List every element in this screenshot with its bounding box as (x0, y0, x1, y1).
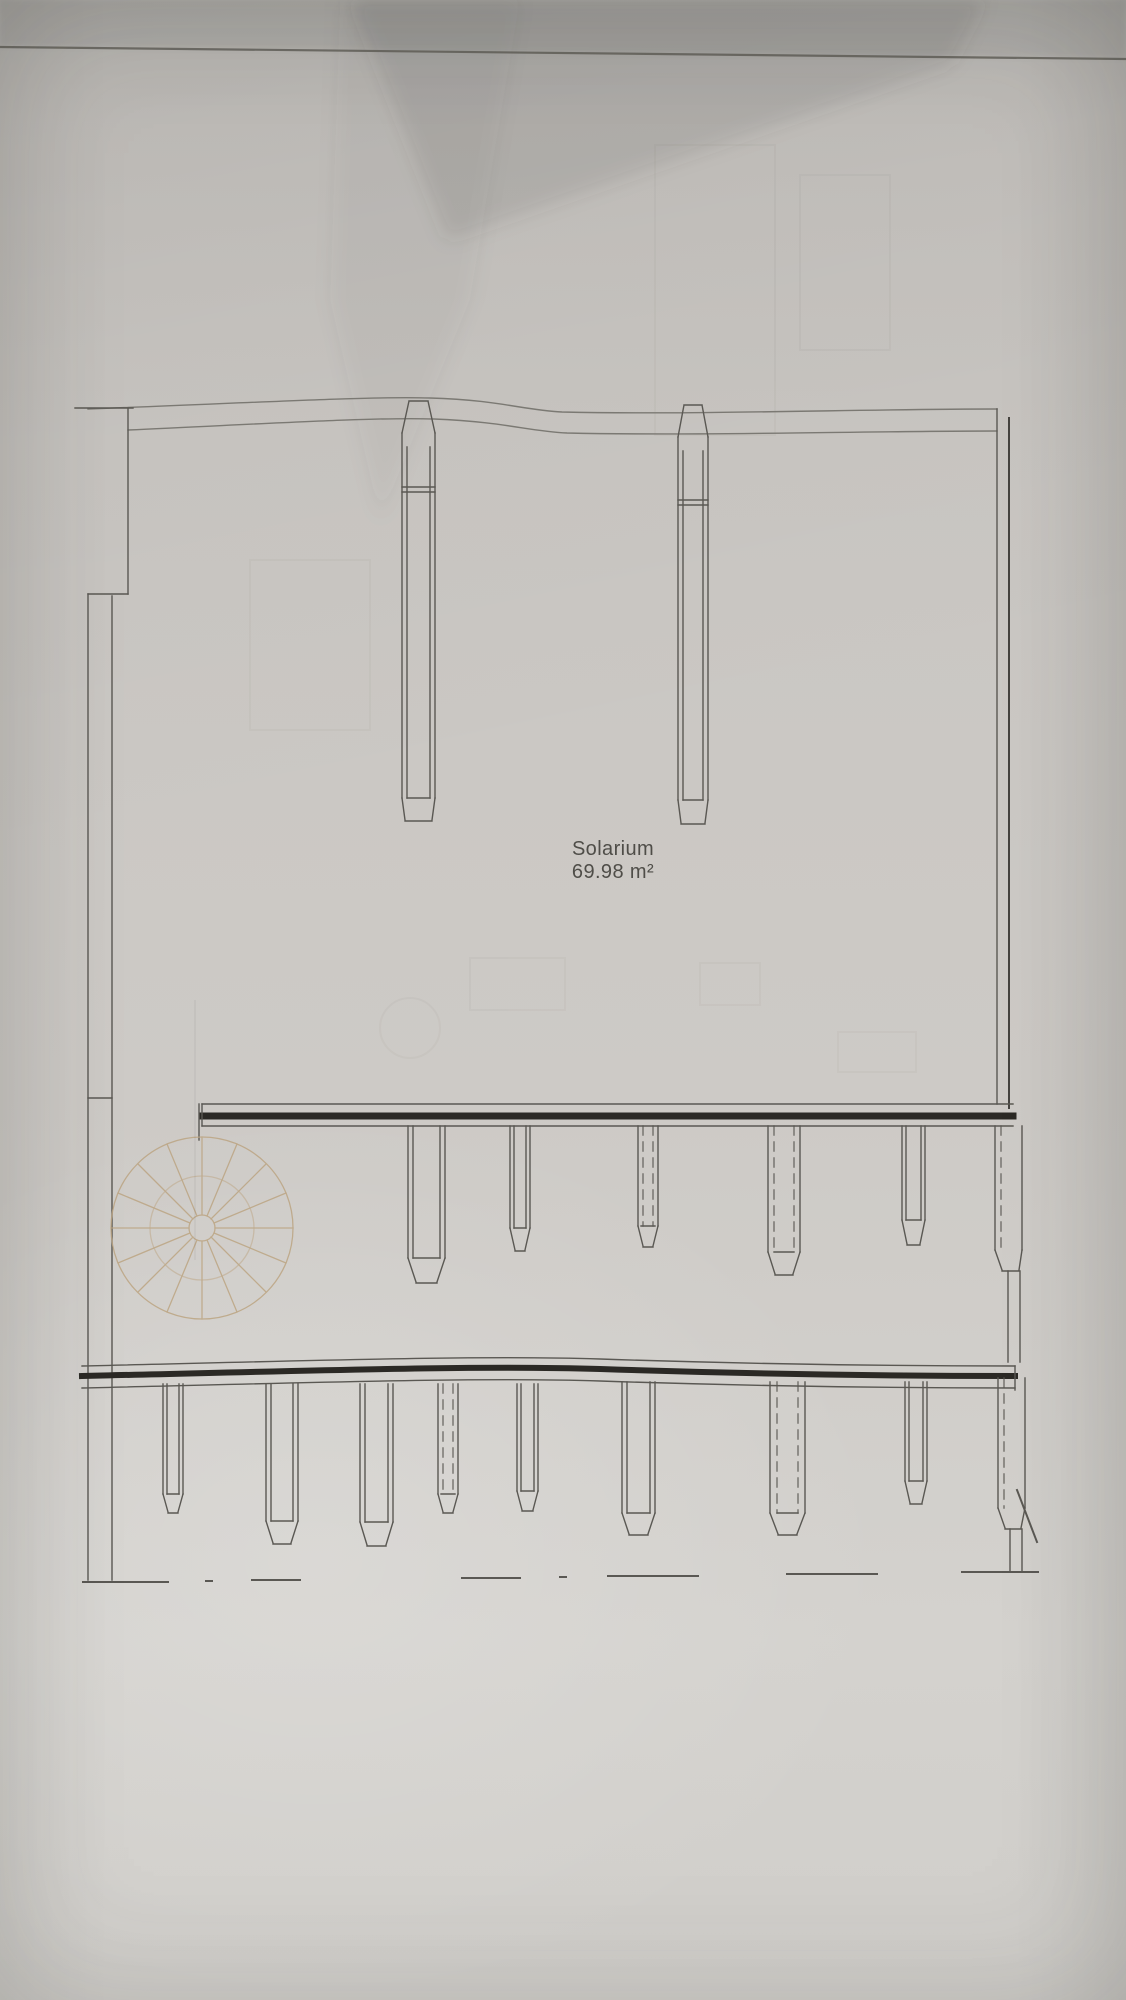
skylight-beam-left (402, 401, 435, 821)
paper-edge (0, 0, 1126, 59)
lower-wall-band (82, 1358, 1015, 1390)
room-name: Solarium (538, 838, 688, 861)
room-area: 69.98 m² (538, 861, 688, 884)
room-label: Solarium 69.98 m² (538, 838, 688, 884)
paper-crease (194, 1000, 196, 1260)
spiral-staircase (111, 1137, 293, 1319)
floor-plan-drawing (0, 0, 1126, 2000)
floor-plan-photo: Solarium 69.98 m² (0, 0, 1126, 2000)
pergola-beam-row-2 (163, 1378, 1037, 1572)
photo-shadow-wedge (330, 0, 985, 520)
solarium-room-outline (75, 398, 1013, 1580)
skylight-beam-right (678, 405, 708, 824)
pergola-beam-row-1 (408, 1126, 1022, 1362)
bottom-dashed-line (83, 1572, 1038, 1582)
